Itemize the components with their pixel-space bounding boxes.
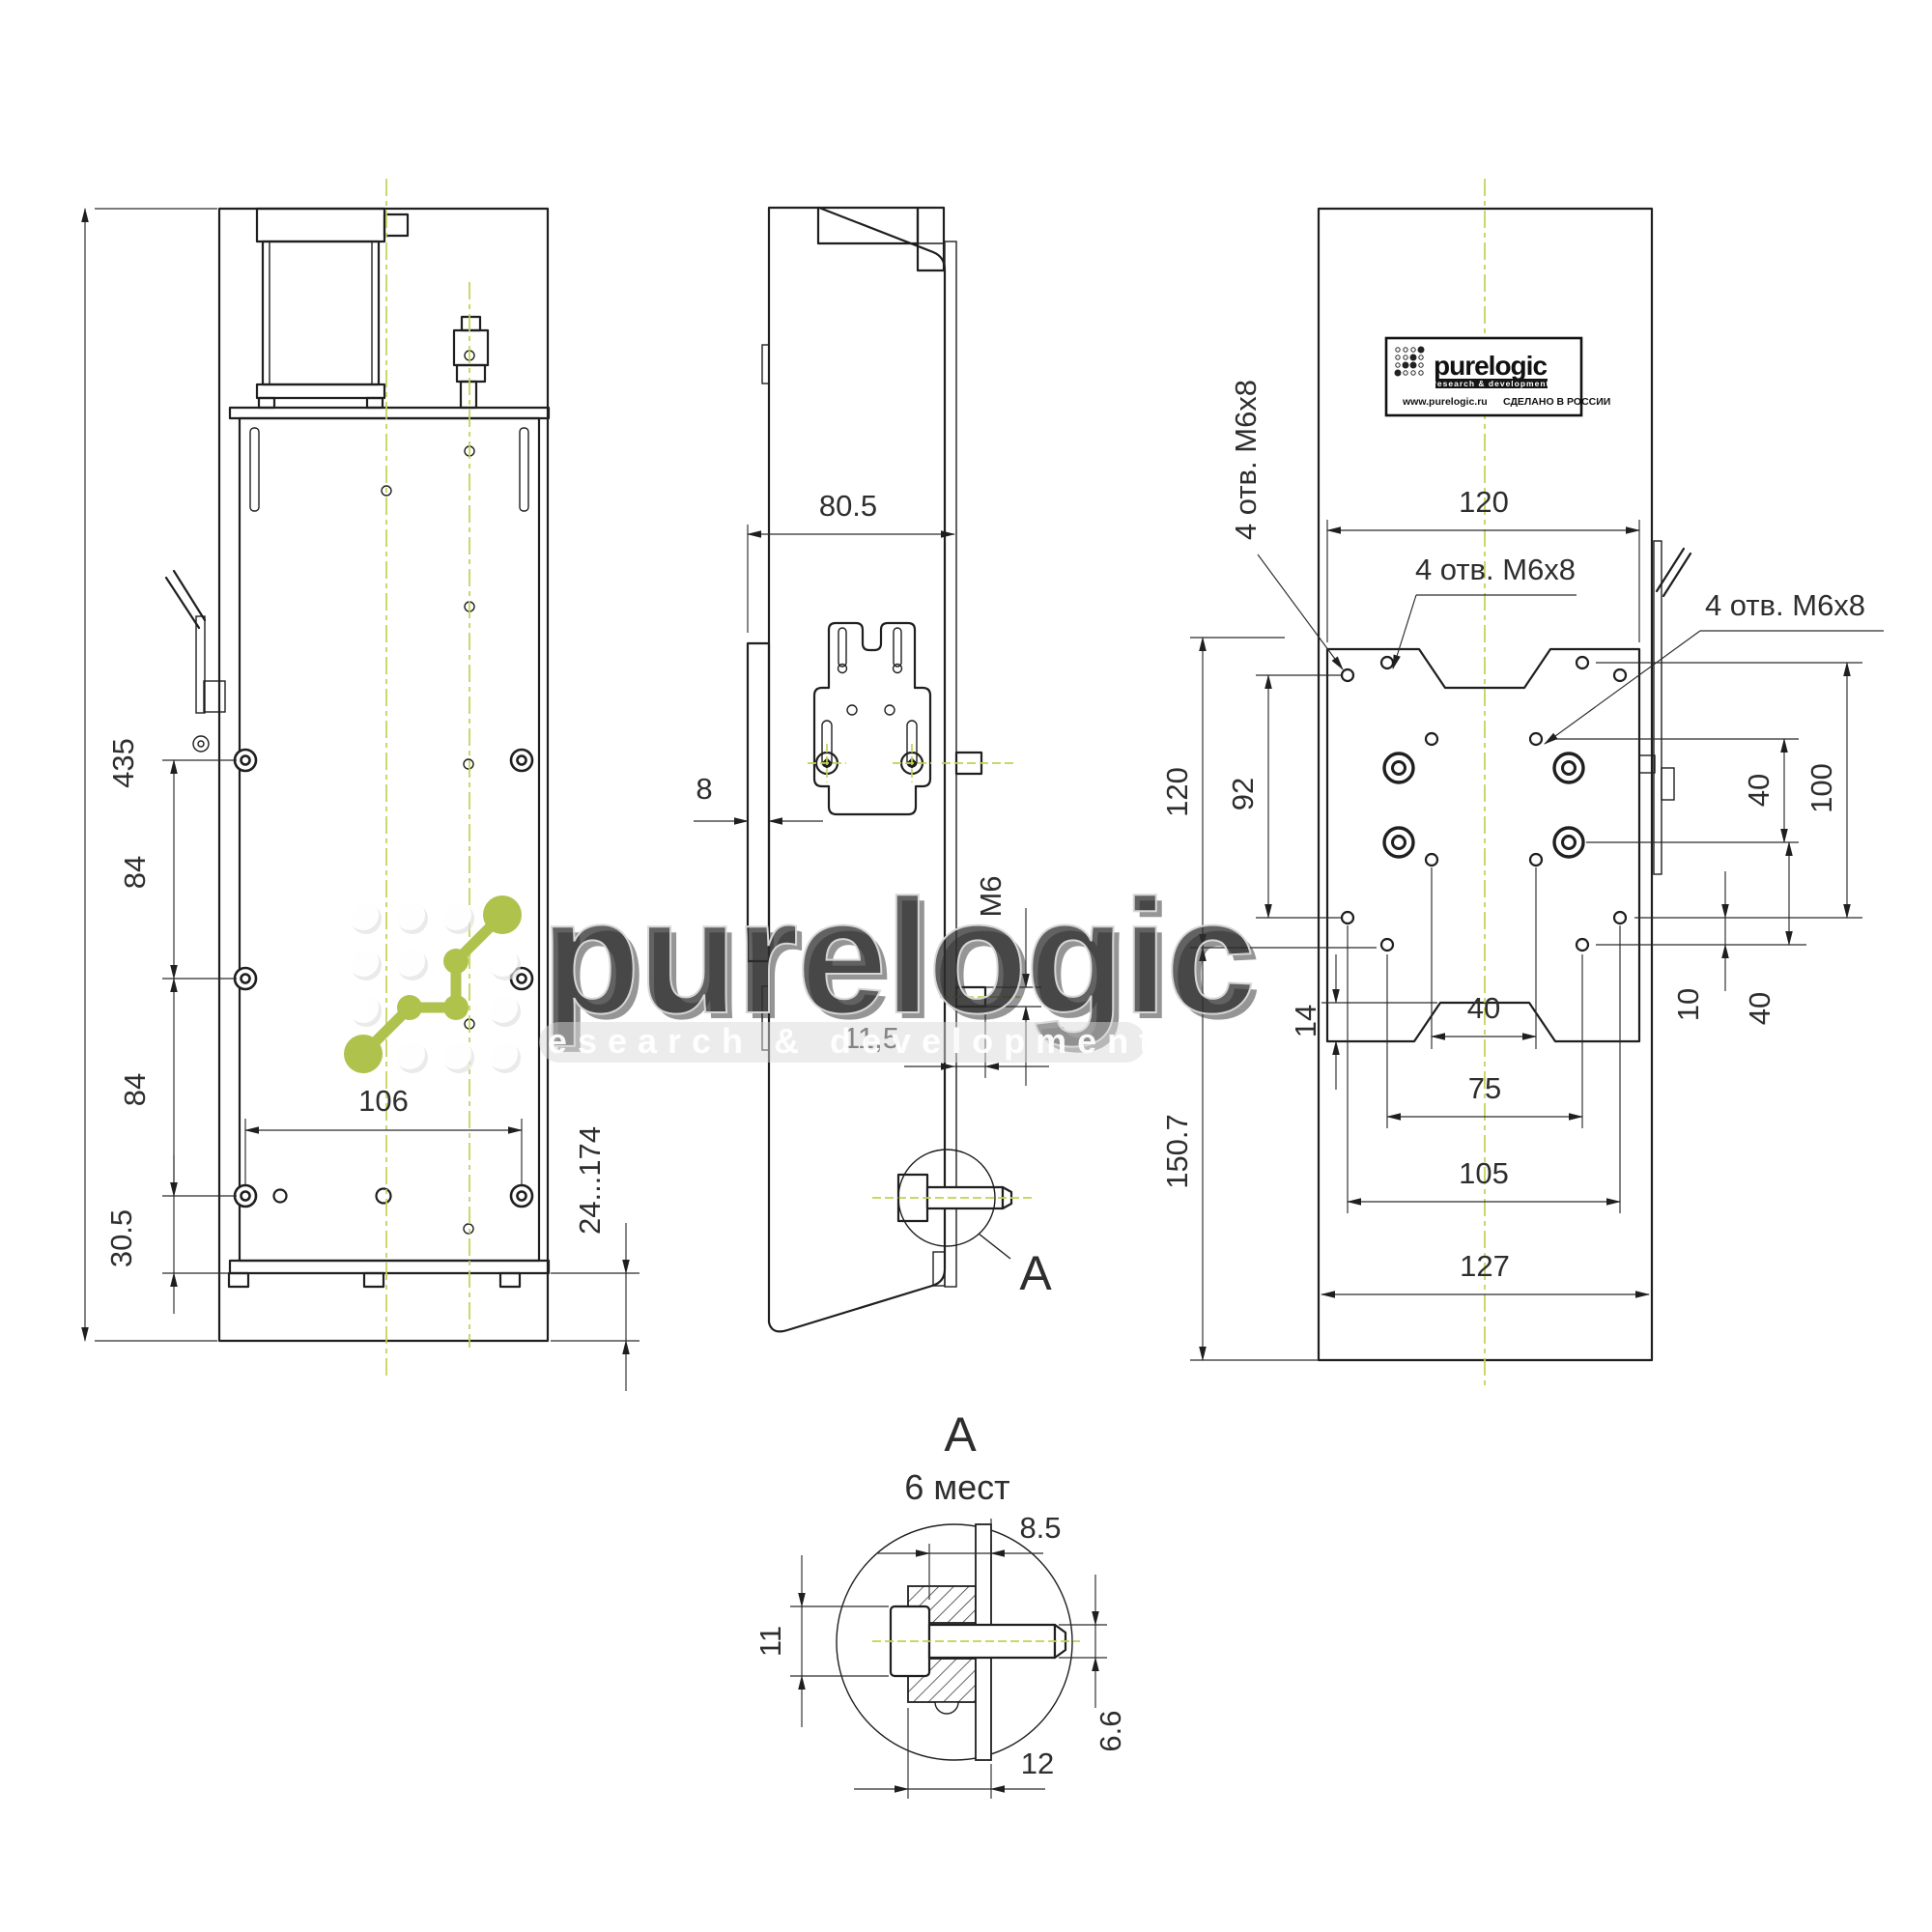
name-plate: purelogic research & development www.pur…	[1386, 338, 1610, 415]
dim-total: 12	[1021, 1747, 1054, 1780]
dim-depth: 80.5	[819, 489, 877, 523]
dim-body-width: 127	[1460, 1249, 1510, 1283]
dim-pitch-b: 84	[118, 1073, 152, 1106]
dim-col-span: 92	[1226, 778, 1260, 810]
dim-upper-height: 120	[1160, 767, 1194, 817]
watermark-brand: purelogic	[541, 866, 1254, 1047]
dim-span-105: 105	[1459, 1156, 1509, 1190]
dim-right-step: 40	[1742, 774, 1776, 807]
dim-lower-height: 150.7	[1160, 1114, 1194, 1189]
dim-center-span: 40	[1467, 991, 1500, 1025]
hole-note-right: 4 отв. M6x8	[1705, 588, 1865, 622]
dim-height: 435	[106, 738, 140, 788]
dim-bottom-offset: 30.5	[104, 1209, 138, 1267]
dim-notch: 14	[1289, 1005, 1322, 1037]
dim-plate-thickness: 8	[696, 772, 712, 806]
dim-travel: 24...174	[573, 1126, 607, 1235]
plate-tagline: research & development	[1434, 379, 1550, 388]
plate-origin: СДЕЛАНО В РОССИИ	[1503, 396, 1610, 408]
plate-url: www.purelogic.ru	[1402, 396, 1488, 408]
dim-hole-dia: 6.6	[1094, 1710, 1127, 1751]
dim-grip: 8.5	[1019, 1511, 1061, 1545]
detail-ref-label: A	[1019, 1246, 1052, 1300]
dim-right-span: 100	[1804, 763, 1838, 813]
dim-span-75: 75	[1468, 1071, 1501, 1105]
hole-note-top: 4 отв. M6x8	[1415, 553, 1576, 586]
detail-places: 6 мест	[904, 1467, 1009, 1507]
dim-bottom-span: 40	[1743, 992, 1776, 1025]
plate-brand: purelogic	[1434, 351, 1547, 381]
dim-plate-width: 120	[1459, 485, 1509, 519]
dim-head: 11	[753, 1626, 787, 1657]
dim-pitch-a: 84	[118, 856, 152, 889]
detail-title: A	[944, 1407, 977, 1462]
technical-drawing: 435 84 84 30.5 106 24...174	[0, 0, 1932, 1932]
hole-note-left: 4 отв. M6x8	[1229, 380, 1263, 540]
dim-hole-span: 106	[358, 1084, 409, 1118]
dim-bottom-step: 10	[1671, 988, 1705, 1021]
drawing-sheet: 435 84 84 30.5 106 24...174	[0, 0, 1932, 1932]
watermark-tagline: research & development	[524, 1021, 1161, 1061]
